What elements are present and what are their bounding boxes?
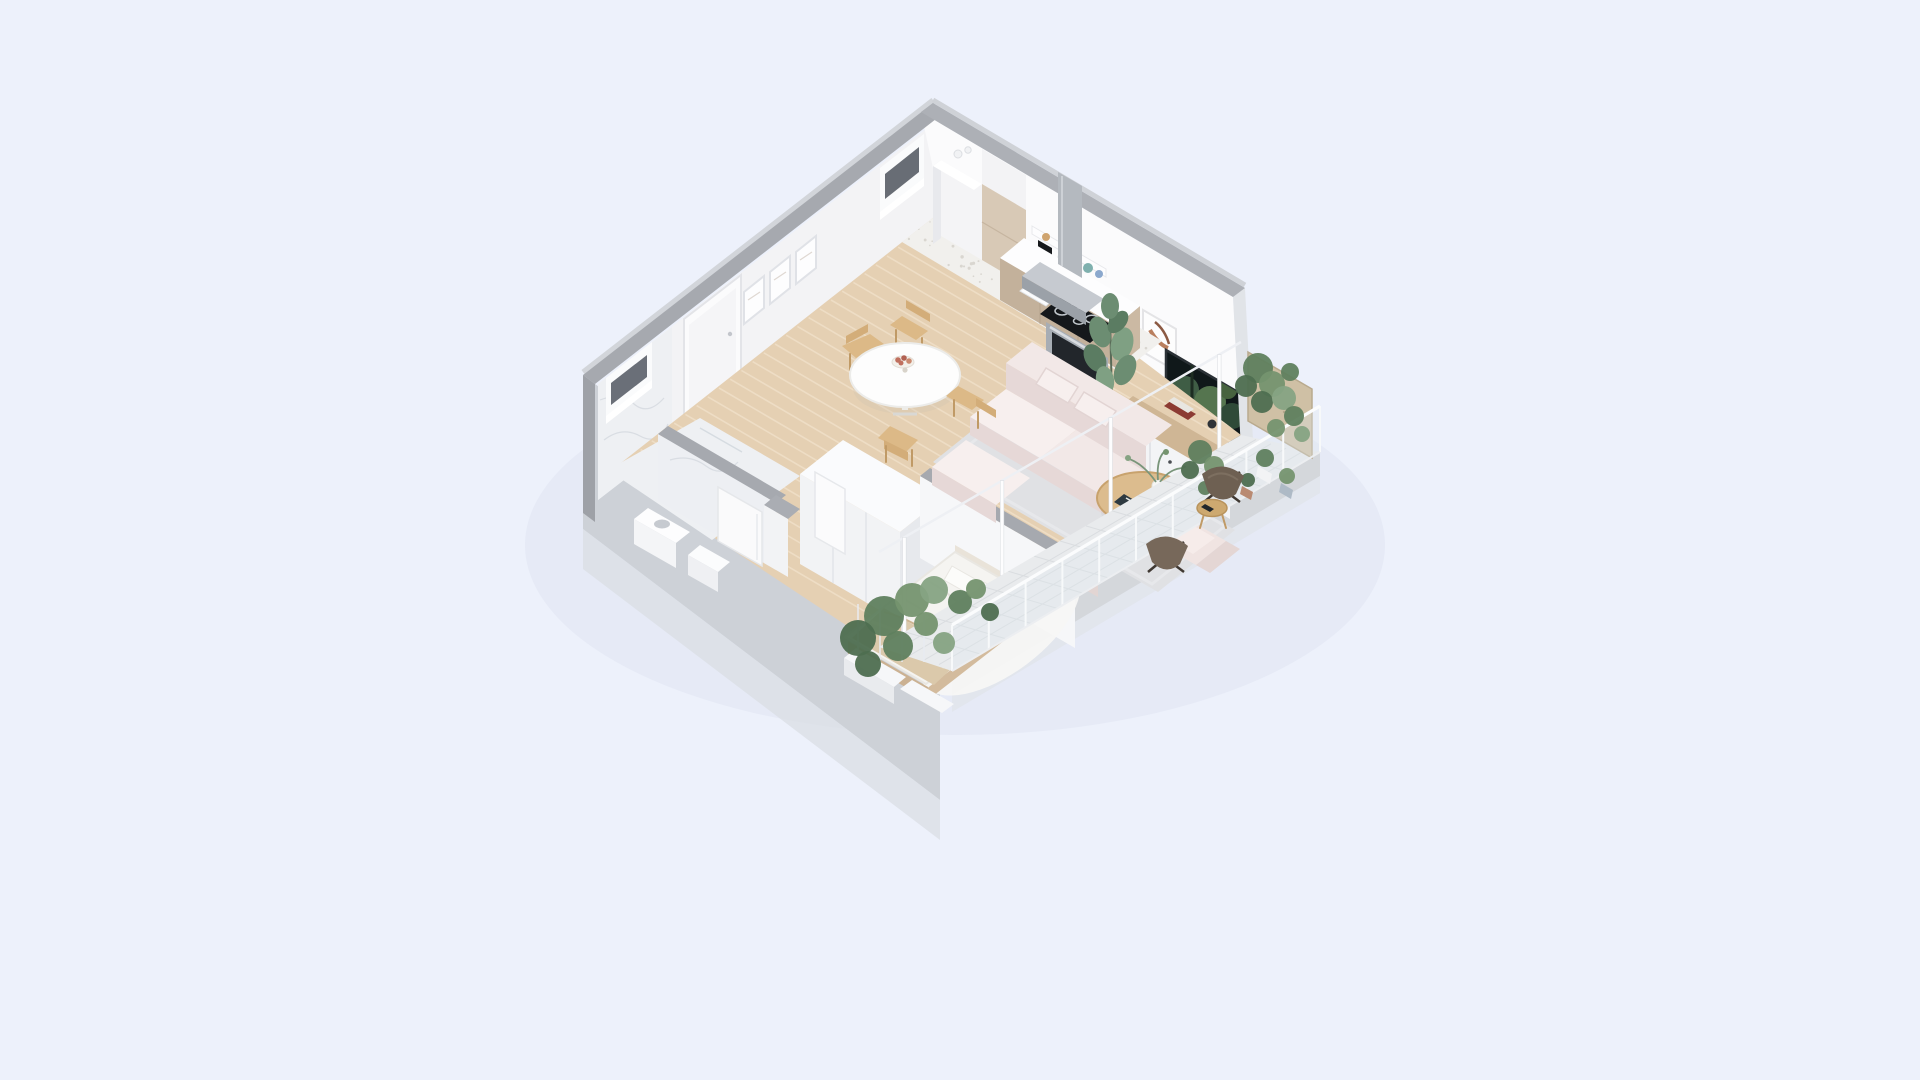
foliage [883, 631, 913, 661]
glass-post [1000, 481, 1004, 576]
glass-post [1109, 418, 1113, 513]
terrazzo-speckle [968, 267, 971, 270]
terrazzo-speckle [977, 260, 979, 262]
foliage [933, 632, 955, 654]
terrazzo-speckle [991, 278, 993, 280]
leaf [1163, 449, 1169, 455]
jar [954, 150, 962, 158]
leaf [1125, 455, 1131, 461]
foliage [1279, 468, 1295, 484]
foliage [1267, 419, 1285, 437]
fruit [899, 361, 904, 366]
foliage [1281, 363, 1299, 381]
cup [902, 367, 907, 372]
foliage [966, 579, 986, 599]
terrazzo-speckle [929, 245, 931, 247]
terrazzo-speckle [931, 240, 933, 242]
blue-vase [1095, 270, 1103, 278]
console-handle [1168, 460, 1172, 464]
terrazzo-speckle [908, 238, 910, 240]
foliage [855, 651, 881, 677]
terrazzo-speckle [972, 262, 975, 265]
foliage [920, 576, 948, 604]
apartment-floorplan-render [0, 0, 1920, 1080]
glass-post [1217, 355, 1221, 450]
screenshot-canvas [0, 0, 1920, 1080]
terrazzo-speckle [947, 264, 949, 266]
jar [965, 147, 971, 153]
foliage [1235, 375, 1257, 397]
terrazzo-speckle [963, 265, 965, 267]
foliage [840, 620, 876, 656]
foliage [1251, 391, 1273, 413]
table-top [850, 343, 960, 407]
fruit [901, 355, 907, 361]
terrazzo-speckle [924, 239, 927, 242]
leaf [1101, 293, 1119, 319]
fruit [906, 358, 912, 364]
terrazzo-speckle [973, 275, 975, 277]
teal-kettle [1083, 263, 1093, 273]
foliage [1294, 426, 1310, 442]
foliage [981, 603, 999, 621]
basin [654, 520, 670, 529]
console-vase [1208, 420, 1217, 429]
terrazzo-speckle [1145, 347, 1148, 350]
door-handle [728, 332, 732, 336]
terrazzo-speckle [960, 255, 963, 258]
foliage [1256, 449, 1274, 467]
terrazzo-speckle [929, 221, 931, 223]
foliage [1241, 473, 1255, 487]
wood-plate [1042, 233, 1050, 241]
foliage [1181, 461, 1199, 479]
cabinet-side [933, 160, 941, 244]
terrazzo-speckle [960, 265, 963, 268]
foliage [914, 612, 938, 636]
terrazzo-speckle [980, 273, 982, 275]
terrazzo-speckle [979, 281, 981, 283]
foliage [1284, 406, 1304, 426]
corner-post-left [583, 375, 595, 522]
terrazzo-speckle [952, 245, 955, 248]
